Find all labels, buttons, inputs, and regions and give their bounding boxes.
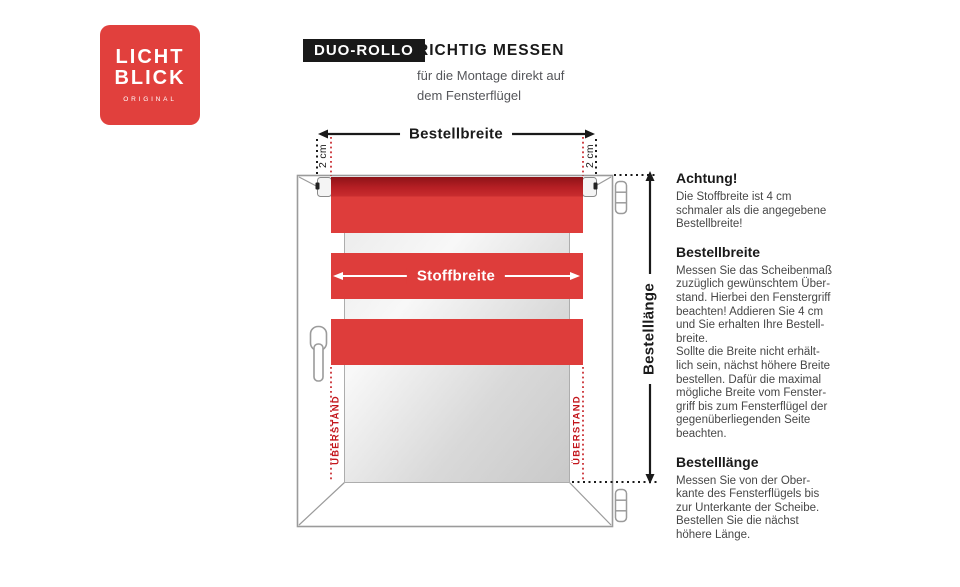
info-body: Die Stoffbreite ist 4 cm schmaler als di… (676, 191, 866, 232)
hinge-top-icon (616, 182, 627, 214)
hinge-bottom-icon (616, 490, 627, 522)
fabric-width-label: Stoffbreite (407, 268, 505, 285)
fabric-stripe-top (331, 197, 583, 234)
fabric-stripe-bottom (331, 319, 583, 365)
order-length-label: Bestelllänge (641, 274, 658, 384)
offset-left-label: 2 cm (317, 144, 329, 168)
order-width-label: Bestellbreite (400, 126, 512, 143)
overhang-right-label: ÜBERSTAND (572, 395, 583, 465)
roller-tube (316, 177, 598, 197)
info-body: Messen Sie von der Ober- kante des Fenst… (676, 475, 866, 543)
info-panel: Achtung! Die Stoffbreite ist 4 cm schmal… (676, 170, 866, 554)
info-heading: Achtung! (676, 170, 866, 186)
info-section-bestellbreite: Bestellbreite Messen Sie das Scheibenmaß… (676, 244, 866, 442)
info-section-achtung: Achtung! Die Stoffbreite ist 4 cm schmal… (676, 170, 866, 232)
info-heading: Bestellbreite (676, 244, 866, 260)
info-section-bestelllaenge: Bestelllänge Messen Sie von der Ober- ka… (676, 454, 866, 543)
info-heading: Bestelllänge (676, 454, 866, 470)
overhang-left-label: ÜBERSTAND (331, 395, 342, 465)
offset-right-label: 2 cm (584, 144, 596, 168)
measurement-instruction-page: LICHT BLICK ORIGINAL DUO-ROLLO RICHTIG M… (0, 0, 960, 587)
info-body: Messen Sie das Scheibenmaß zuzüglich gew… (676, 265, 866, 442)
